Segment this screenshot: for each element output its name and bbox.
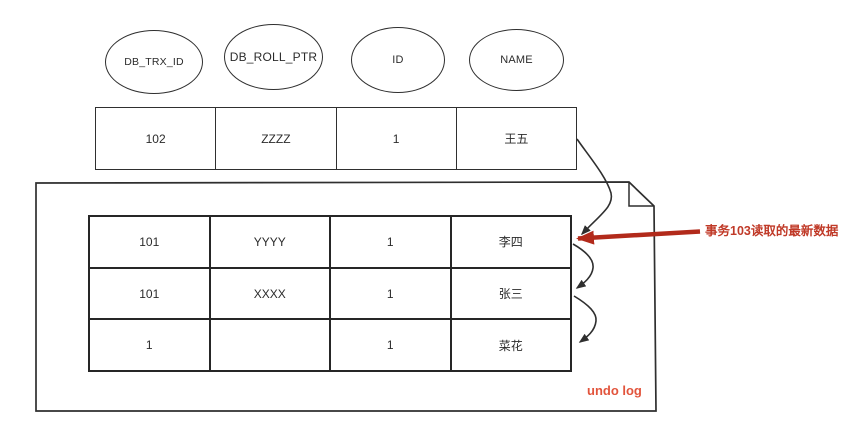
roll-ptr-curve-latest-to-row1 xyxy=(577,139,611,234)
annotation-text: 事务103读取的最新数据 xyxy=(705,224,850,239)
annotation-arrow xyxy=(578,232,700,239)
cell-trx-id: 1 xyxy=(90,320,211,370)
undo-log-label: undo log xyxy=(587,383,642,398)
field-ellipse-db-trx-id: DB_TRX_ID xyxy=(105,30,203,94)
fold-corner-icon xyxy=(629,182,654,206)
cell-trx-id: 101 xyxy=(90,269,211,319)
field-label: ID xyxy=(392,54,403,66)
roll-ptr-curve-row1-to-row2 xyxy=(573,244,593,288)
version-row: 101 YYYY 1 李四 xyxy=(90,217,570,269)
cell-trx-id: 102 xyxy=(96,108,216,169)
latest-record-row: 102 ZZZZ 1 王五 xyxy=(95,107,577,170)
cell-roll-ptr: ZZZZ xyxy=(216,108,336,169)
cell-id: 1 xyxy=(331,217,452,267)
roll-ptr-curve-row2-to-row3 xyxy=(574,296,596,342)
cell-name: 李四 xyxy=(452,217,571,267)
cell-roll-ptr: XXXX xyxy=(211,269,332,319)
cell-roll-ptr xyxy=(211,320,332,370)
field-label: DB_TRX_ID xyxy=(124,56,184,68)
cell-roll-ptr: YYYY xyxy=(211,217,332,267)
cell-id: 1 xyxy=(337,108,457,169)
cell-name: 王五 xyxy=(457,108,576,169)
field-label: NAME xyxy=(500,54,533,66)
cell-trx-id: 101 xyxy=(90,217,211,267)
undo-log-version-table: 101 YYYY 1 李四 101 XXXX 1 张三 1 1 菜花 xyxy=(88,215,572,372)
field-ellipse-id: ID xyxy=(351,27,445,93)
mvcc-undo-log-diagram: DB_TRX_ID DB_ROLL_PTR ID NAME 102 ZZZZ 1… xyxy=(0,0,850,447)
field-ellipse-name: NAME xyxy=(469,29,564,91)
version-row: 101 XXXX 1 张三 xyxy=(90,269,570,321)
field-ellipse-db-roll-ptr: DB_ROLL_PTR xyxy=(224,24,323,90)
cell-id: 1 xyxy=(331,269,452,319)
version-row: 1 1 菜花 xyxy=(90,320,570,370)
cell-name: 张三 xyxy=(452,269,571,319)
field-label: DB_ROLL_PTR xyxy=(230,50,318,64)
cell-id: 1 xyxy=(331,320,452,370)
cell-name: 菜花 xyxy=(452,320,571,370)
